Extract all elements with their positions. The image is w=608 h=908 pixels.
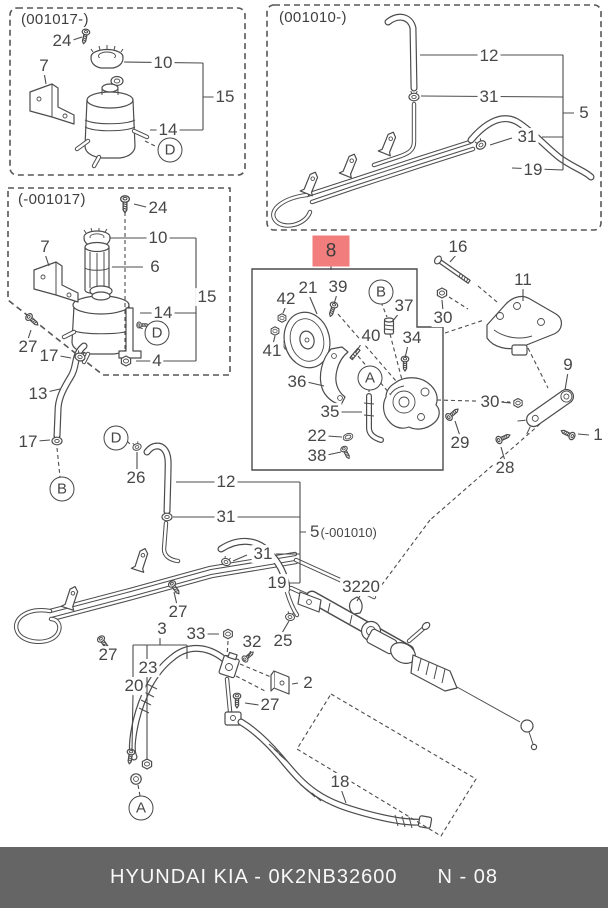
part-label-3: 3: [155, 620, 168, 638]
part-label-42: 42: [275, 290, 298, 308]
inset-box-title-001017: (001017-): [18, 11, 92, 28]
ref-circle-D: D: [104, 426, 129, 451]
footer-brand-part-code: HYUNDAI KIA - 0K2NB32600: [110, 866, 397, 889]
part-label-26: 26: [125, 469, 148, 487]
ref-circle-A: A: [358, 366, 383, 391]
part-label-28: 28: [494, 459, 517, 477]
part-label-17: 17: [38, 347, 61, 365]
part-label-21: 21: [297, 279, 320, 297]
part-label-24: 24: [147, 199, 170, 217]
inset-box-title-pre-001017: (-001017): [15, 191, 89, 208]
part-label-39: 39: [327, 278, 350, 296]
part-label-19: 19: [266, 574, 289, 592]
ref-circle-B: B: [369, 280, 394, 305]
part-label-37: 37: [393, 297, 416, 315]
highlighted-part-label-8: 8: [313, 236, 350, 267]
part-label-17: 17: [17, 433, 40, 451]
part-label-35: 35: [319, 403, 342, 421]
part-label-5: 5: [577, 104, 590, 122]
footer-bar: HYUNDAI KIA - 0K2NB32600 N - 08: [0, 847, 608, 908]
part-label-14: 14: [157, 121, 180, 139]
part-label-14: 14: [152, 304, 175, 322]
part-label-31: 31: [516, 128, 539, 146]
part-label-27: 27: [97, 646, 120, 664]
part-label-31: 31: [215, 508, 238, 526]
part-label-6: 6: [148, 258, 161, 276]
part-label-20: 20: [123, 677, 146, 695]
part-label-31: 31: [478, 88, 501, 106]
footer-sheet-number: N - 08: [438, 866, 498, 889]
part-label-5: 5(-001010): [308, 523, 379, 541]
part-label-7: 7: [38, 238, 51, 256]
ref-circle-D: D: [158, 138, 183, 163]
part-label-30: 30: [479, 393, 502, 411]
part-label-15: 15: [196, 288, 219, 306]
part-label-36: 36: [286, 373, 309, 391]
part-label-29: 29: [449, 434, 472, 452]
ref-circle-D: D: [145, 321, 170, 346]
part-label-12: 12: [478, 47, 501, 65]
part-label-2: 2: [301, 674, 314, 692]
part-label-32: 32: [241, 633, 264, 651]
part-label-15: 15: [214, 88, 237, 106]
ref-circle-B: B: [50, 477, 75, 502]
part-label-25: 25: [272, 632, 295, 650]
ref-circle-A: A: [129, 796, 154, 821]
inset-box-title-001010: (001010-): [276, 9, 350, 26]
part-label-16: 16: [447, 238, 470, 256]
part-label-7: 7: [37, 57, 50, 75]
part-label-33: 33: [185, 625, 208, 643]
part-label-31: 31: [252, 545, 275, 563]
part-label-30: 30: [432, 309, 455, 327]
part-label-3220: 3220: [340, 578, 382, 596]
part-label-22: 22: [306, 427, 329, 445]
parts-diagram-page: 247101514D1231531192410761514D271741317B…: [0, 0, 608, 908]
part-label-4: 4: [150, 352, 163, 370]
part-label-40: 40: [360, 327, 383, 345]
part-label-27: 27: [167, 603, 190, 621]
part-label-34: 34: [401, 329, 424, 347]
part-label-24: 24: [51, 32, 74, 50]
part-labels: 247101514D1231531192410761514D271741317B…: [0, 0, 608, 848]
part-label-27: 27: [17, 338, 40, 356]
part-label-18: 18: [329, 773, 352, 791]
part-label-11: 11: [512, 271, 534, 289]
part-label-38: 38: [306, 447, 329, 465]
part-label-10: 10: [147, 229, 170, 247]
part-label-1: 1: [591, 426, 604, 444]
part-label-27: 27: [259, 696, 282, 714]
part-label-9: 9: [561, 356, 574, 374]
part-label-10: 10: [152, 54, 175, 72]
part-label-12: 12: [215, 473, 238, 491]
part-label-19: 19: [522, 161, 545, 179]
part-label-41: 41: [261, 342, 284, 360]
part-label-13: 13: [27, 385, 50, 403]
part-label-23: 23: [137, 659, 160, 677]
